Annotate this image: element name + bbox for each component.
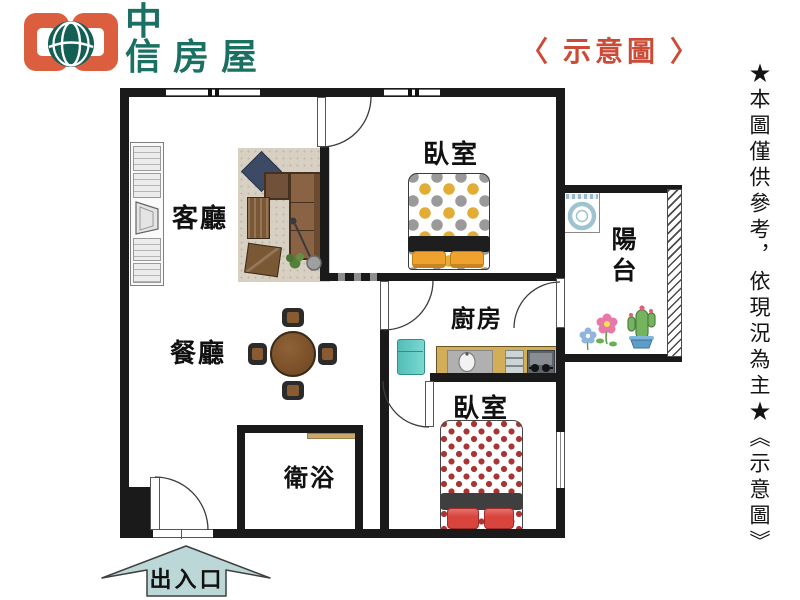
door-leaf-bedroom2 bbox=[425, 381, 434, 427]
label-bathroom: 衛浴 bbox=[284, 458, 336, 493]
wall-hall-vertical bbox=[380, 373, 389, 533]
tv-cabinet-shelf bbox=[133, 146, 161, 171]
label-balcony: 陽台 bbox=[604, 226, 640, 288]
logo-globe-icon bbox=[45, 19, 97, 71]
window-tick bbox=[215, 89, 219, 96]
drawer bbox=[505, 358, 524, 366]
label-dining-room: 餐廳 bbox=[170, 333, 226, 370]
door-leaf-balcony bbox=[556, 278, 565, 328]
wall-bedroom2-top bbox=[430, 373, 565, 382]
chair-seat bbox=[252, 348, 263, 360]
wall-left bbox=[120, 88, 129, 538]
bed-pillow bbox=[447, 508, 479, 529]
bathroom-shelf bbox=[307, 433, 361, 439]
dining-chair-east bbox=[318, 343, 337, 365]
washing-machine bbox=[564, 191, 600, 233]
chair-seat bbox=[287, 312, 299, 323]
coffee-table bbox=[247, 197, 270, 239]
window-bedroom2-right bbox=[556, 432, 565, 488]
bed-pillow bbox=[412, 251, 446, 268]
chair-seat bbox=[322, 348, 333, 360]
label-bedroom-top: 臥室 bbox=[423, 134, 479, 171]
label-kitchen: 廚房 bbox=[451, 299, 503, 334]
stove bbox=[527, 350, 555, 374]
label-entrance: 出入口 bbox=[146, 562, 228, 594]
pink-flower-icon bbox=[596, 314, 618, 347]
label-bedroom-bottom: 臥室 bbox=[453, 388, 509, 425]
bed-star-pattern bbox=[440, 420, 523, 531]
door-leaf-kitchen-left bbox=[380, 281, 389, 330]
window-bedroom1-top bbox=[384, 89, 440, 96]
door-arc-kitchen-left bbox=[384, 281, 433, 330]
sink-panel bbox=[447, 350, 493, 374]
door-arc-bedroom2 bbox=[383, 381, 429, 427]
freezer-divider bbox=[398, 351, 423, 352]
wall-bathroom-right bbox=[355, 425, 363, 533]
drawer bbox=[505, 350, 524, 358]
dining-table bbox=[270, 331, 316, 377]
washer-control-panel bbox=[566, 194, 598, 199]
disclaimer-vertical-text: ★本圖僅供參考，依現況為主★《示意圖》 bbox=[744, 62, 774, 592]
bed-pillow bbox=[450, 251, 484, 268]
blue-flower-icon bbox=[580, 328, 597, 351]
sofa bbox=[289, 172, 323, 260]
window-tick bbox=[208, 89, 212, 96]
dining-chair-north bbox=[282, 308, 304, 327]
tv-cabinet-shelf bbox=[133, 263, 161, 283]
dining-chair-south bbox=[282, 381, 304, 400]
logo-text-line1: 中 bbox=[125, 5, 162, 41]
door-arc-bedroom1 bbox=[321, 97, 371, 147]
door-arc-balcony bbox=[514, 282, 560, 328]
wall-balcony-top bbox=[565, 185, 682, 193]
logo-text-line2: 信房屋 bbox=[125, 39, 269, 75]
ottoman-chair bbox=[244, 243, 282, 277]
wall-balcony-bottom bbox=[565, 354, 682, 362]
wall-bathroom-left bbox=[237, 425, 245, 533]
tv-cabinet-shelf bbox=[133, 238, 161, 261]
entrance-threshold bbox=[153, 529, 213, 538]
dining-chair-west bbox=[248, 343, 267, 365]
stove-glass bbox=[530, 353, 552, 365]
label-living-room: 客廳 bbox=[172, 198, 228, 235]
cactus-icon bbox=[628, 305, 655, 348]
wall-balcony-window-hatched bbox=[667, 189, 682, 357]
structural-pillar bbox=[120, 487, 153, 533]
chair-seat bbox=[287, 385, 299, 396]
wall-bedroom1-bottom bbox=[384, 273, 565, 281]
window-tick bbox=[408, 89, 412, 96]
wall-divider-living-bedroom bbox=[320, 147, 329, 281]
bed-polka-dot bbox=[408, 173, 490, 270]
door-leaf-bedroom1 bbox=[317, 97, 326, 147]
window-tick bbox=[415, 89, 419, 96]
threshold-divider bbox=[181, 530, 182, 539]
drawer-unit bbox=[505, 350, 524, 374]
beam-dashed-line bbox=[329, 273, 385, 281]
wall-bathroom-top bbox=[237, 425, 363, 433]
refrigerator bbox=[397, 339, 425, 375]
bed-blanket-band bbox=[408, 236, 490, 252]
door-arc-entrance bbox=[155, 477, 208, 530]
page-title: 〈 示意圖 〉 bbox=[520, 30, 702, 70]
sofa-chaise bbox=[264, 172, 290, 200]
window-living-top bbox=[166, 89, 260, 96]
bed-pillow bbox=[484, 508, 514, 529]
window-mullion bbox=[560, 432, 561, 488]
tv-cabinet-shelf bbox=[133, 173, 161, 198]
door-leaf-entrance bbox=[150, 477, 160, 530]
